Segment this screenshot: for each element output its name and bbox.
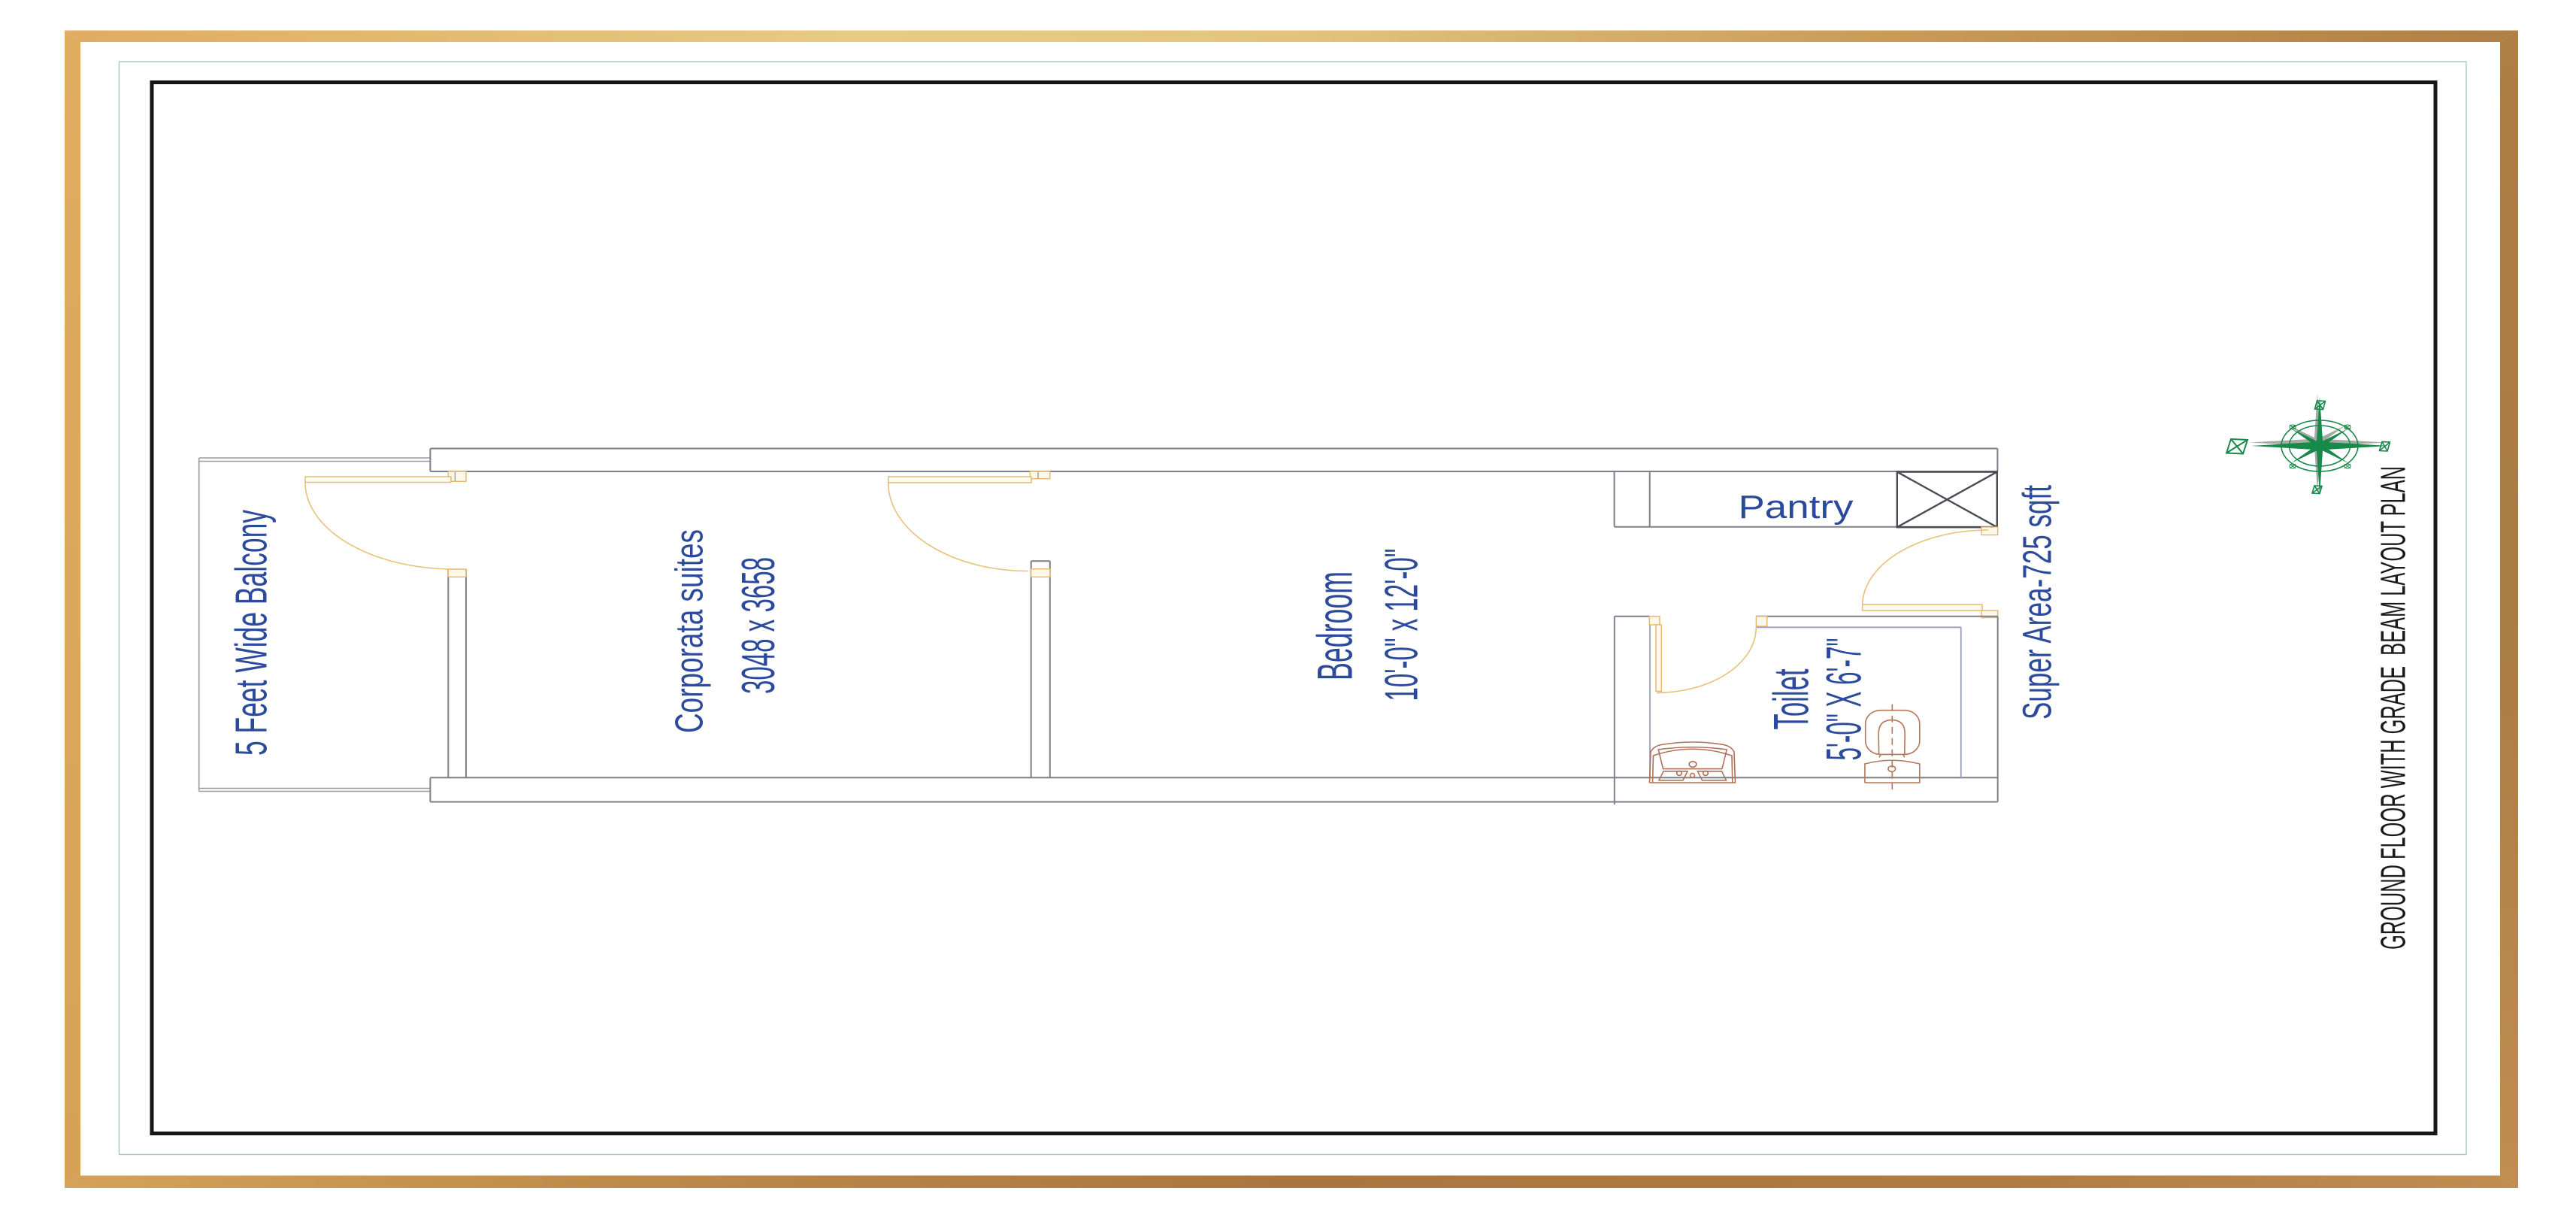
- svg-text:10'-0" x 12'-0": 10'-0" x 12'-0": [1376, 549, 1428, 701]
- svg-text:Toilet: Toilet: [1763, 669, 1819, 730]
- svg-text:5 Feet Wide Balcony: 5 Feet Wide Balcony: [227, 510, 277, 756]
- svg-text:Corporata suites: Corporata suites: [668, 529, 712, 733]
- svg-text:Pantry: Pantry: [1739, 489, 1854, 526]
- svg-text:3048 x 3658: 3048 x 3658: [733, 557, 785, 694]
- svg-text:5'-0" X 6'-7": 5'-0" X 6'-7": [1816, 638, 1872, 761]
- svg-text:GROUND FLOOR WITH GRADE BEAM: GROUND FLOOR WITH GRADE BEAM LAYOUT PLAN: [2374, 466, 2413, 950]
- svg-text:Super Area-725 sqft: Super Area-725 sqft: [2015, 485, 2060, 720]
- svg-text:Bedroom: Bedroom: [1307, 571, 1363, 680]
